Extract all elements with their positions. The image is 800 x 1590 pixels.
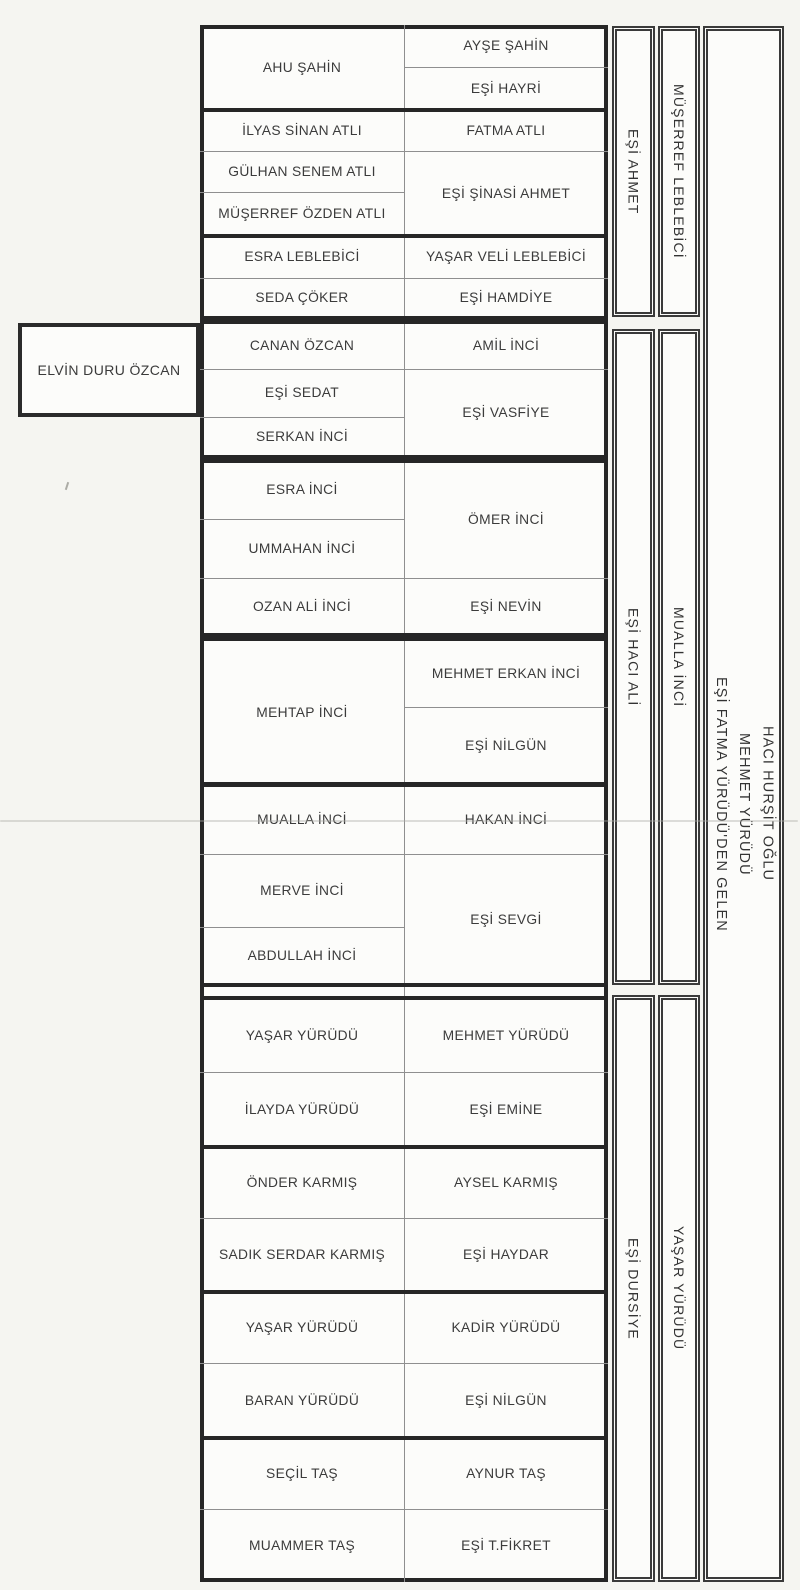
person-cell: MEHTAP İNCİ <box>204 640 400 785</box>
person-cell: AYŞE ŞAHİN <box>408 25 604 67</box>
side-column-spouse-1: EŞİ AHMET <box>612 26 655 317</box>
side-column-spouse-2: EŞİ HACI ALİ <box>612 329 655 985</box>
person-cell: HAKAN İNCİ <box>408 785 604 854</box>
side-column-spouse-3: EŞİ DURSİYE <box>612 995 655 1582</box>
scanned-family-tree-page: ELVİN DURU ÖZCAN AHU ŞAHİN <box>0 0 800 1590</box>
person-cell: EŞİ NEVİN <box>408 578 604 635</box>
person-cell: ÖNDER KARMIŞ <box>204 1147 400 1218</box>
person-cell: YAŞAR YÜRÜDÜ <box>204 1000 400 1072</box>
person-cell: MUAMMER TAŞ <box>204 1509 400 1582</box>
person-cell: AYNUR TAŞ <box>408 1438 604 1509</box>
person-cell: ESRA İNCİ <box>204 461 400 519</box>
column-divider <box>404 25 405 1582</box>
person-cell: EŞİ EMİNE <box>408 1072 604 1147</box>
person-cell: EŞİ NİLGÜN <box>408 707 604 785</box>
person-cell: EŞİ VASFİYE <box>408 369 604 457</box>
person-cell: KADİR YÜRÜDÜ <box>408 1292 604 1363</box>
person-cell: BARAN YÜRÜDÜ <box>204 1363 400 1438</box>
vertical-label: MÜŞERREF LEBLEBİCİ <box>671 84 687 259</box>
origin-line: MEHMET YÜRÜDÜ <box>732 677 755 932</box>
person-cell: MEHMET YÜRÜDÜ <box>408 1000 604 1072</box>
person-cell: MUALLA İNCİ <box>204 785 400 854</box>
person-cell: UMMAHAN İNCİ <box>204 519 400 578</box>
person-cell: SEDA ÇÖKER <box>204 278 400 318</box>
side-column-head-3: YAŞAR YÜRÜDÜ <box>658 995 700 1582</box>
person-name: ELVİN DURU ÖZCAN <box>37 362 180 378</box>
person-cell: MERVE İNCİ <box>204 854 400 927</box>
person-cell: YAŞAR VELİ LEBLEBİCİ <box>408 236 604 278</box>
person-cell: SADIK SERDAR KARMIŞ <box>204 1218 400 1292</box>
person-cell: EŞİ NİLGÜN <box>408 1363 604 1438</box>
person-cell: CANAN ÖZCAN <box>204 322 400 369</box>
person-cell: FATMA ATLI <box>408 110 604 151</box>
person-cell: GÜLHAN SENEM ATLI <box>204 151 400 192</box>
person-cell: MÜŞERREF ÖZDEN ATLI <box>204 192 400 236</box>
person-cell: ÖMER İNCİ <box>408 461 604 578</box>
person-cell: YAŞAR YÜRÜDÜ <box>204 1292 400 1363</box>
person-cell: İLYAS SİNAN ATLI <box>204 110 400 151</box>
person-cell: AMİL İNCİ <box>408 322 604 369</box>
person-cell: AHU ŞAHİN <box>204 25 400 110</box>
person-cell: SEÇİL TAŞ <box>204 1438 400 1509</box>
person-cell: EŞİ HAMDİYE <box>408 278 604 318</box>
origin-line: EŞİ FATMA YÜRÜDÜ'DEN GELEN <box>709 677 732 932</box>
person-cell: EŞİ SEVGİ <box>408 854 604 985</box>
vertical-label: MUALLA İNCİ <box>671 607 687 707</box>
origin-text: HACI HURŞİT OĞLU MEHMET YÜRÜDÜ EŞİ FATMA… <box>709 677 779 932</box>
vertical-label: EŞİ AHMET <box>626 129 642 214</box>
origin-line: HACI HURŞİT OĞLU <box>755 677 778 932</box>
person-cell: AYSEL KARMIŞ <box>408 1147 604 1218</box>
side-column-head-1: MÜŞERREF LEBLEBİCİ <box>658 26 700 317</box>
person-cell: ESRA LEBLEBİCİ <box>204 236 400 278</box>
side-column-head-2: MUALLA İNCİ <box>658 329 700 985</box>
standalone-person-box: ELVİN DURU ÖZCAN <box>18 323 200 417</box>
person-cell: EŞİ SEDAT <box>204 369 400 417</box>
person-cell: EŞİ ŞİNASİ AHMET <box>408 151 604 236</box>
person-cell: OZAN ALİ İNCİ <box>204 578 400 635</box>
person-cell: MEHMET ERKAN İNCİ <box>408 640 604 707</box>
origin-column: HACI HURŞİT OĞLU MEHMET YÜRÜDÜ EŞİ FATMA… <box>703 26 784 1582</box>
vertical-label: EŞİ HACI ALİ <box>626 608 642 706</box>
family-table: AHU ŞAHİN AYŞE ŞAHİN EŞİ HAYRİ İLYAS SİN… <box>200 25 608 1582</box>
person-cell: EŞİ T.FİKRET <box>408 1509 604 1582</box>
vertical-label: EŞİ DURSİYE <box>626 1238 642 1340</box>
person-cell: EŞİ HAYDAR <box>408 1218 604 1292</box>
person-cell: ABDULLAH İNCİ <box>204 927 400 985</box>
person-cell: SERKAN İNCİ <box>204 417 400 457</box>
scan-artifact-mark <box>65 482 69 490</box>
person-cell: EŞİ HAYRİ <box>408 67 604 110</box>
vertical-label: YAŞAR YÜRÜDÜ <box>671 1226 687 1350</box>
person-cell: İLAYDA YÜRÜDÜ <box>204 1072 400 1147</box>
